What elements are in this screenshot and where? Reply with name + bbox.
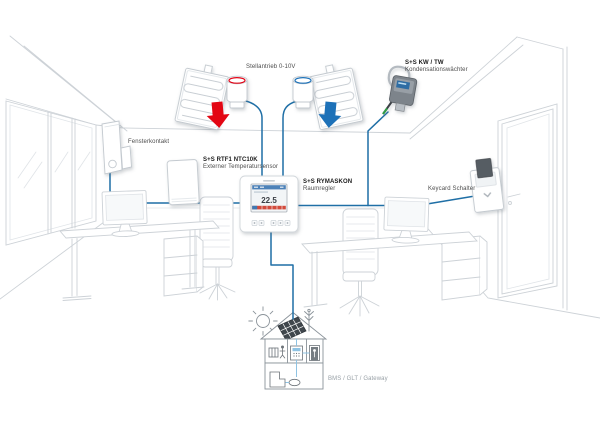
window-contact-device	[102, 121, 132, 174]
keycard-card	[476, 158, 493, 178]
line-actuator-right	[283, 101, 297, 178]
drawer-unit-right	[442, 236, 487, 300]
label-temp-sensor-title: S+S RTF1 NTC10K	[203, 157, 278, 164]
label-external-temp-sensor: S+S RTF1 NTC10K Externer Temperatursenso…	[203, 157, 278, 171]
external-temp-sensor-device	[167, 159, 199, 205]
actuator-left-device	[227, 76, 247, 108]
label-room-controller-subtitle: Raumregler	[303, 186, 352, 193]
label-condensation-subtitle: Kondensationswächter	[405, 67, 468, 74]
person-at-door-icon	[310, 346, 320, 361]
label-window-contact: Fensterkontakt	[128, 139, 169, 146]
label-room-controller-title: S+S RYMASKON	[303, 179, 352, 186]
scene-illustration: 22.5	[0, 0, 600, 424]
line-bms	[271, 230, 293, 319]
label-actuator: Stellantrieb 0-10V	[246, 64, 296, 71]
label-bms-gateway: BMS / GLT / Gateway	[328, 376, 388, 383]
diagram-canvas: 22.5 Stellantrieb 0-10V S+S KW / TW Kond…	[0, 0, 600, 424]
actuator-right-device	[293, 76, 313, 108]
line-condensation	[368, 112, 388, 206]
label-condensation-monitor: S+S KW / TW Kondensationswächter	[405, 60, 468, 74]
controller-status-bar	[252, 206, 286, 210]
label-condensation-title: S+S KW / TW	[405, 60, 468, 67]
door	[498, 104, 557, 298]
label-keycard-switch: Keycard Schalter	[428, 186, 475, 193]
label-room-controller: S+S RYMASKON Raumregler	[303, 179, 352, 193]
label-temp-sensor-subtitle: Externer Temperatursensor	[203, 164, 278, 171]
building-lower-floor	[265, 363, 323, 389]
ceiling-back-edge	[123, 128, 410, 133]
controller-screen: 22.5	[251, 184, 287, 212]
room-controller-device: 22.5	[240, 176, 298, 232]
drawer-unit-left	[164, 236, 203, 296]
chair-left	[200, 197, 235, 300]
bms-building-icon	[249, 307, 326, 389]
chair-right	[340, 209, 379, 316]
controller-temperature-value: 22.5	[261, 196, 277, 205]
